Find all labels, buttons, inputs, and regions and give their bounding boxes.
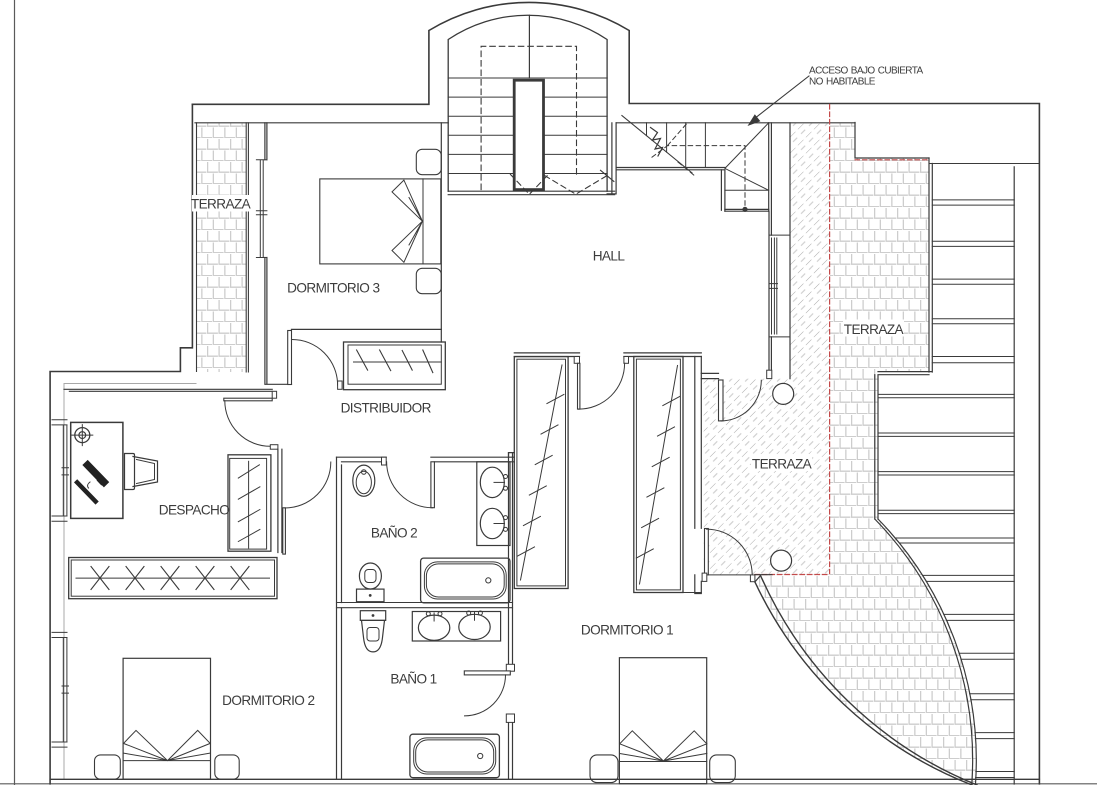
svg-text:TERRAZA: TERRAZA (844, 322, 905, 337)
svg-text:NO HABITABLE: NO HABITABLE (809, 77, 876, 88)
svg-text:BAÑO 1: BAÑO 1 (390, 672, 436, 687)
svg-text:TERRAZA: TERRAZA (191, 197, 252, 212)
svg-text:ACCESO BAJO CUBIERTA: ACCESO BAJO CUBIERTA (809, 66, 923, 77)
svg-text:DISTRIBUIDOR: DISTRIBUIDOR (341, 401, 432, 416)
svg-text:DORMITORIO 1: DORMITORIO 1 (581, 623, 673, 638)
svg-text:BAÑO 2: BAÑO 2 (371, 526, 417, 541)
svg-text:DORMITORIO 2: DORMITORIO 2 (222, 693, 314, 708)
svg-text:TERRAZA: TERRAZA (752, 457, 813, 472)
svg-text:HALL: HALL (593, 249, 626, 264)
svg-text:DESPACHO: DESPACHO (159, 503, 230, 518)
svg-text:DORMITORIO 3: DORMITORIO 3 (287, 281, 379, 296)
